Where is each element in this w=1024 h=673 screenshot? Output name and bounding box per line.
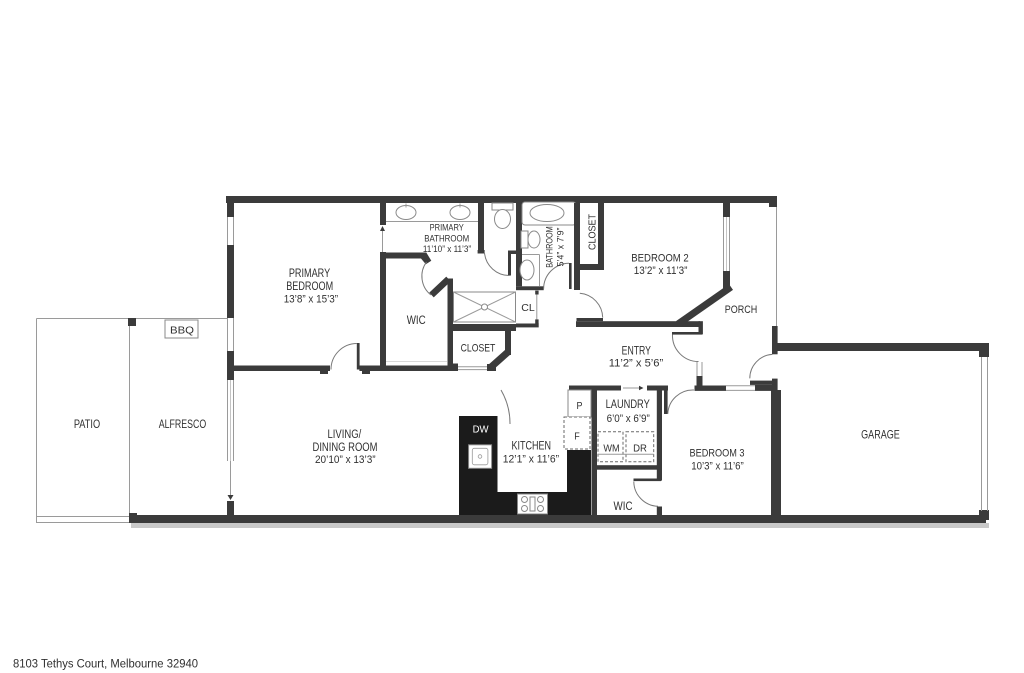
svg-text:10’3” x 11’6”: 10’3” x 11’6” — [691, 461, 744, 473]
svg-text:WM: WM — [603, 442, 619, 454]
svg-text:PRIMARY: PRIMARY — [430, 223, 464, 233]
svg-text:GARAGE: GARAGE — [861, 428, 900, 442]
svg-text:CLOSET: CLOSET — [587, 214, 599, 250]
svg-text:5’4” x 7’9”: 5’4” x 7’9” — [556, 227, 566, 266]
svg-text:ALFRESCO: ALFRESCO — [159, 419, 207, 431]
svg-text:BEDROOM 2: BEDROOM 2 — [631, 252, 689, 264]
svg-text:DW: DW — [473, 424, 489, 436]
svg-text:6’0” x 6’9”: 6’0” x 6’9” — [607, 413, 651, 425]
svg-text:8103 Tethys Court, Melbourne 3: 8103 Tethys Court, Melbourne 32940 — [13, 659, 198, 671]
svg-text:11’10” x 11’3”: 11’10” x 11’3” — [423, 244, 471, 254]
svg-text:LIVING/: LIVING/ — [328, 429, 362, 441]
svg-text:13’8” x 15’3”: 13’8” x 15’3” — [284, 294, 339, 306]
svg-text:WIC: WIC — [614, 499, 633, 513]
svg-text:BATHROOM: BATHROOM — [545, 226, 555, 268]
svg-text:LAUNDRY: LAUNDRY — [606, 397, 650, 411]
svg-text:PATIO: PATIO — [74, 419, 100, 431]
svg-text:PORCH: PORCH — [725, 304, 758, 316]
svg-text:DINING ROOM: DINING ROOM — [313, 442, 378, 454]
svg-text:12’1” x 11’6”: 12’1” x 11’6” — [503, 454, 560, 466]
svg-text:BATHROOM: BATHROOM — [424, 234, 469, 244]
svg-text:CLOSET: CLOSET — [461, 343, 496, 355]
svg-text:ENTRY: ENTRY — [622, 344, 651, 358]
svg-text:BBQ: BBQ — [170, 325, 194, 337]
svg-text:DR: DR — [633, 442, 647, 454]
svg-text:WIC: WIC — [407, 313, 426, 327]
svg-text:20’10” x 13’3”: 20’10” x 13’3” — [315, 454, 376, 466]
svg-text:KITCHEN: KITCHEN — [511, 439, 551, 453]
svg-text:F: F — [574, 431, 580, 443]
svg-text:13’2” x 11’3”: 13’2” x 11’3” — [634, 265, 688, 277]
svg-text:P: P — [577, 400, 583, 412]
svg-text:PRIMARY: PRIMARY — [289, 266, 330, 280]
svg-text:BEDROOM: BEDROOM — [286, 279, 333, 293]
svg-text:BEDROOM 3: BEDROOM 3 — [690, 448, 745, 460]
svg-text:11’2” x 5’6”: 11’2” x 5’6” — [609, 357, 664, 369]
svg-text:CL: CL — [521, 303, 535, 314]
